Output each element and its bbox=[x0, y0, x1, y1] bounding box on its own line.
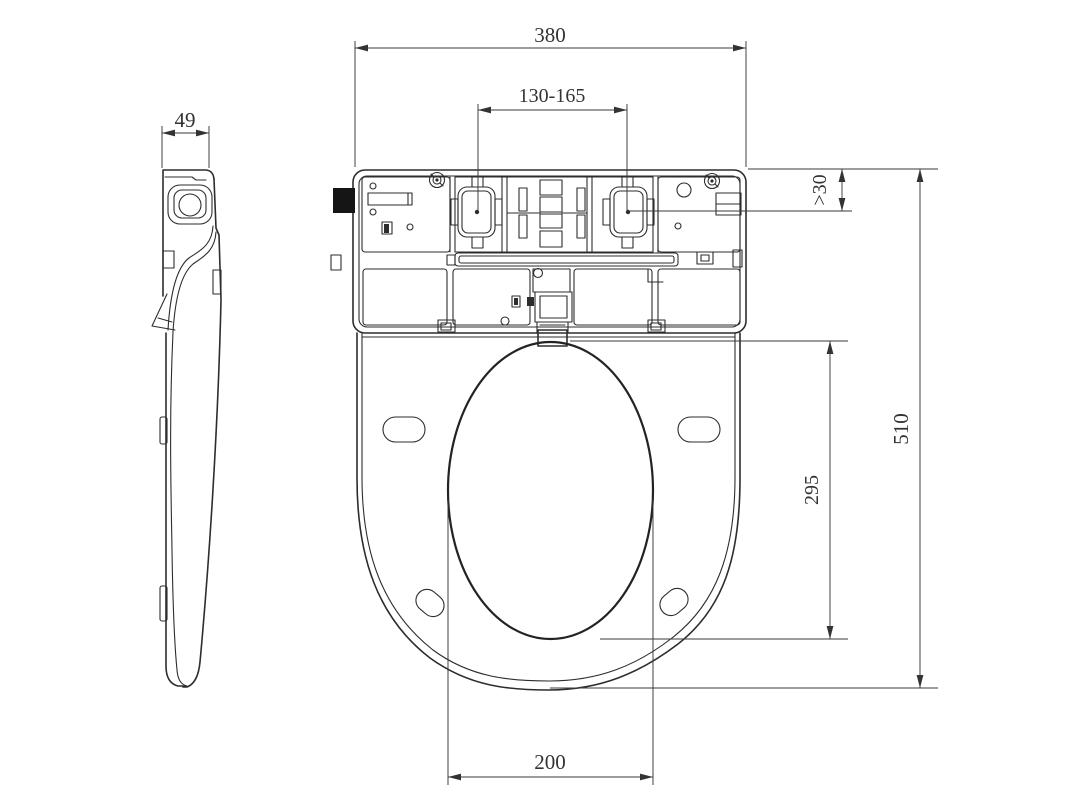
inlet-mechanism bbox=[501, 269, 572, 334]
knob-dial bbox=[179, 194, 201, 216]
fitting-hole bbox=[677, 183, 691, 197]
left-compartment bbox=[362, 177, 450, 252]
dim-label-bowl-width: 200 bbox=[534, 750, 566, 774]
pilot-hole bbox=[675, 223, 681, 229]
mounting-hole-right bbox=[603, 177, 654, 248]
dimension-bowl-length: 295 bbox=[570, 341, 848, 639]
dimension-overall-length: 510 bbox=[550, 169, 938, 688]
technical-drawing-canvas: 380 130-165 49 >30 bbox=[0, 0, 1090, 807]
screw-icon-left bbox=[430, 173, 445, 188]
top-view bbox=[331, 170, 746, 690]
right-compartment bbox=[658, 177, 741, 252]
side-front-edge bbox=[166, 333, 186, 686]
vent-slot bbox=[368, 193, 412, 205]
mount-plate-row bbox=[363, 269, 740, 325]
dimensions: 380 130-165 49 >30 bbox=[162, 23, 938, 785]
seat-opening bbox=[448, 342, 653, 639]
dim-label-mount-hole-spacing: 130-165 bbox=[519, 85, 586, 107]
hole-center-mark bbox=[475, 210, 479, 214]
dimension-side-width: 49 bbox=[162, 108, 209, 168]
hole-center-mark bbox=[626, 210, 630, 214]
dimension-mount-hole-spacing: 130-165 bbox=[478, 85, 627, 210]
side-edge-notch bbox=[163, 251, 174, 268]
dimension-bowl-width: 200 bbox=[448, 500, 653, 785]
bumper-hole-top-right bbox=[678, 417, 720, 442]
dimension-clearance: >30 bbox=[630, 169, 938, 211]
seat-outline bbox=[357, 333, 740, 690]
pilot-hole bbox=[370, 183, 376, 189]
rib-grid bbox=[502, 177, 592, 252]
bumper-hole-bottom-left bbox=[411, 585, 448, 621]
dim-label-bowl-length: 295 bbox=[801, 475, 823, 505]
bumper-hole-bottom-right bbox=[655, 584, 692, 620]
power-connector bbox=[333, 188, 355, 213]
left-edge-socket bbox=[331, 255, 341, 270]
dim-label-overall-width: 380 bbox=[534, 23, 566, 47]
drawing-svg: 380 130-165 49 >30 bbox=[0, 0, 1090, 807]
side-lid-back-edge bbox=[183, 179, 221, 687]
dim-label-overall-length: 510 bbox=[889, 413, 913, 445]
mounting-hole-left bbox=[451, 177, 502, 248]
side-top-seam bbox=[165, 177, 206, 180]
bumper-hole-top-left bbox=[383, 417, 425, 442]
dim-label-side-width: 49 bbox=[175, 108, 196, 132]
dim-label-clearance: >30 bbox=[809, 174, 831, 205]
hinge-wedge-inner bbox=[158, 318, 172, 322]
seat-outline-inner bbox=[362, 333, 735, 681]
pilot-hole bbox=[407, 224, 413, 230]
hinge-bar bbox=[447, 250, 742, 267]
pilot-hole bbox=[370, 209, 376, 215]
side-seat-curve-b bbox=[171, 232, 216, 686]
side-view bbox=[152, 170, 221, 687]
